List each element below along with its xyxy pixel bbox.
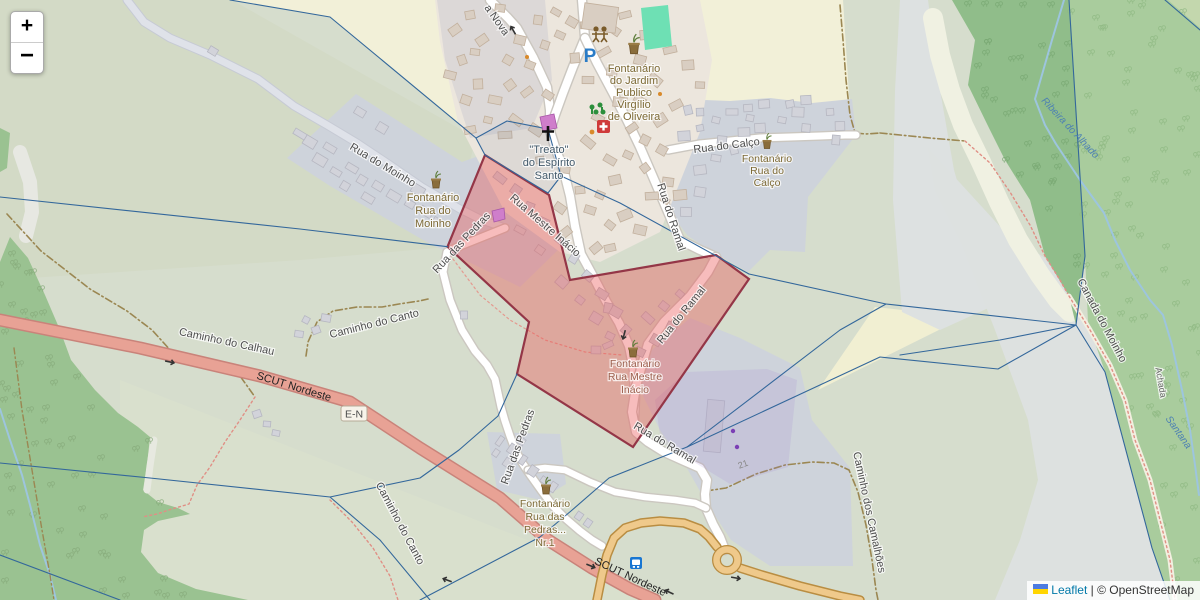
svg-text:Rua do: Rua do [415,205,450,217]
svg-text:Calço: Calço [754,177,781,189]
svg-text:Inácio: Inácio [621,384,649,396]
svg-text:Nr.1: Nr.1 [535,537,554,549]
svg-text:do Espírito: do Espírito [523,157,576,169]
svg-text:Fontanário: Fontanário [520,498,570,510]
svg-text:"Treato": "Treato" [529,144,568,156]
svg-text:Moinho: Moinho [415,218,451,230]
svg-text:do Jardim: do Jardim [610,75,658,87]
svg-text:Rua das: Rua das [525,511,564,523]
svg-text:Virgílio: Virgílio [617,99,650,111]
svg-text:P: P [584,46,597,67]
svg-text:Rua do: Rua do [750,165,784,177]
svg-text:Fontanário: Fontanário [610,358,660,370]
svg-text:Publico: Publico [616,87,652,99]
svg-text:de Oliveira: de Oliveira [608,111,661,123]
svg-text:Santo: Santo [535,170,564,182]
svg-text:Pedras...: Pedras... [524,524,566,536]
svg-text:E-N: E-N [345,409,363,421]
svg-text:Fontanário: Fontanário [742,153,792,165]
svg-text:Fontanário: Fontanário [407,192,460,204]
svg-text:Rua Mestre: Rua Mestre [608,371,662,383]
svg-text:Fontanário: Fontanário [608,63,661,75]
